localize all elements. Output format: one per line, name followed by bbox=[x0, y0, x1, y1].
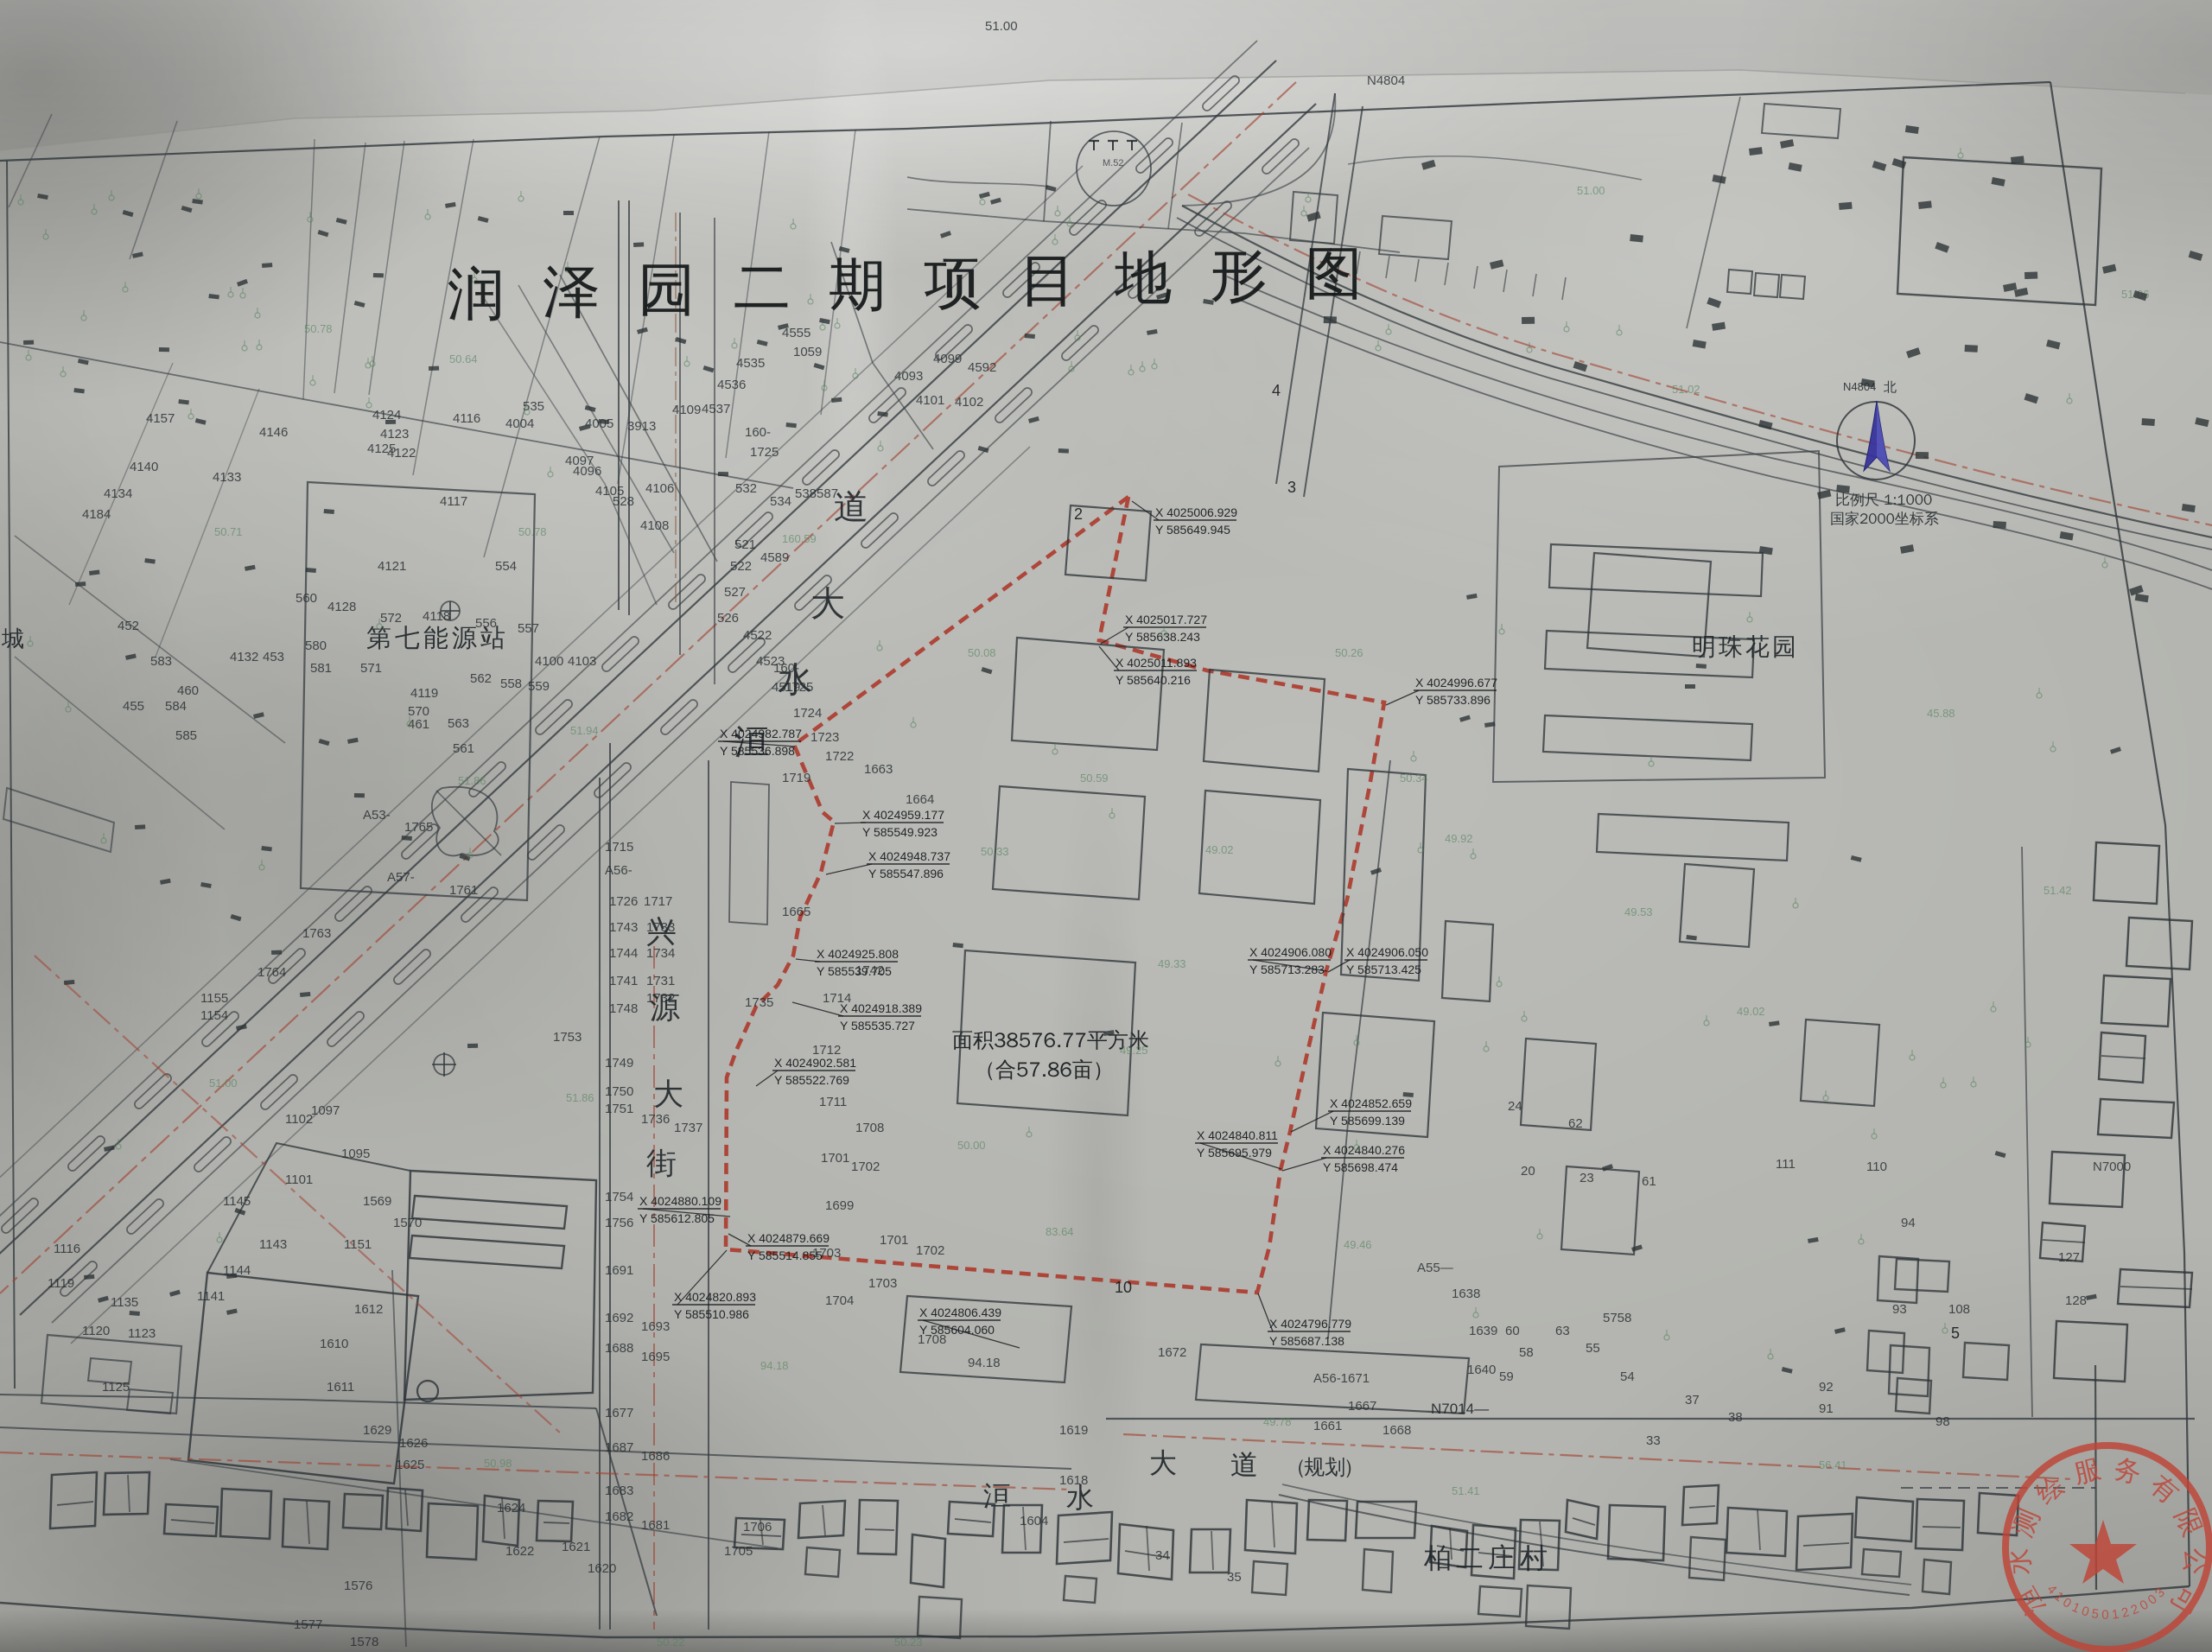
svg-text:1714: 1714 bbox=[823, 991, 851, 1006]
svg-text:4103: 4103 bbox=[568, 654, 596, 669]
svg-text:51.86: 51.86 bbox=[458, 774, 486, 787]
svg-text:N7000: N7000 bbox=[2093, 1160, 2131, 1174]
svg-text:X 4024852.659: X 4024852.659 bbox=[1330, 1096, 1412, 1110]
svg-text:4184: 4184 bbox=[82, 507, 111, 522]
svg-text:Y 585687.138: Y 585687.138 bbox=[1269, 1334, 1344, 1348]
svg-text:59: 59 bbox=[1499, 1369, 1514, 1384]
svg-text:1722: 1722 bbox=[825, 749, 854, 764]
svg-text:108: 108 bbox=[1948, 1302, 1970, 1317]
svg-text:1667: 1667 bbox=[1348, 1399, 1376, 1414]
svg-text:1737: 1737 bbox=[674, 1121, 702, 1135]
svg-text:50.59: 50.59 bbox=[1080, 772, 1109, 785]
svg-text:1619: 1619 bbox=[1059, 1423, 1088, 1438]
svg-text:X 4024840.811: X 4024840.811 bbox=[1197, 1128, 1278, 1142]
svg-text:X 4024796.779: X 4024796.779 bbox=[1269, 1317, 1351, 1331]
svg-text:1624: 1624 bbox=[497, 1501, 525, 1515]
svg-text:559: 559 bbox=[528, 679, 550, 694]
svg-text:1151: 1151 bbox=[344, 1237, 372, 1252]
svg-text:X 4024880.109: X 4024880.109 bbox=[639, 1194, 721, 1208]
svg-text:Y 585522.769: Y 585522.769 bbox=[774, 1073, 849, 1087]
svg-text:527: 527 bbox=[724, 585, 746, 600]
svg-text:50.26: 50.26 bbox=[1335, 646, 1363, 659]
svg-text:4119: 4119 bbox=[410, 686, 438, 701]
svg-text:1726: 1726 bbox=[609, 894, 638, 909]
svg-text:581: 581 bbox=[310, 661, 332, 676]
svg-text:4118: 4118 bbox=[423, 609, 450, 624]
svg-text:1683: 1683 bbox=[605, 1484, 633, 1498]
svg-text:55: 55 bbox=[1586, 1341, 1600, 1356]
svg-text:X 4024840.276: X 4024840.276 bbox=[1323, 1143, 1405, 1157]
svg-text:580: 580 bbox=[305, 639, 327, 653]
svg-text:556: 556 bbox=[475, 616, 497, 631]
svg-text:50.00: 50.00 bbox=[957, 1139, 986, 1152]
svg-text:4140: 4140 bbox=[130, 460, 158, 474]
svg-text:1578: 1578 bbox=[350, 1635, 378, 1649]
svg-text:1677: 1677 bbox=[605, 1406, 633, 1420]
svg-text:127: 127 bbox=[2058, 1250, 2080, 1265]
svg-text:1618: 1618 bbox=[1059, 1473, 1088, 1488]
svg-text:56.41: 56.41 bbox=[1819, 1458, 1847, 1471]
svg-text:4005: 4005 bbox=[585, 416, 613, 431]
svg-text:1754: 1754 bbox=[605, 1190, 633, 1204]
svg-text:3913: 3913 bbox=[627, 419, 656, 434]
svg-text:33: 33 bbox=[1646, 1433, 1661, 1448]
svg-text:1719: 1719 bbox=[782, 771, 810, 785]
svg-text:460: 460 bbox=[177, 683, 199, 698]
svg-text:4121: 4121 bbox=[378, 559, 406, 574]
svg-text:34: 34 bbox=[1155, 1548, 1170, 1563]
svg-text:1663: 1663 bbox=[864, 762, 893, 777]
svg-text:A55—: A55— bbox=[1417, 1261, 1453, 1275]
svg-text:1610: 1610 bbox=[320, 1337, 348, 1351]
svg-text:24: 24 bbox=[1508, 1099, 1522, 1114]
svg-text:49.46: 49.46 bbox=[1344, 1238, 1372, 1251]
svg-text:1725: 1725 bbox=[750, 445, 779, 460]
svg-text:X 4024948.737: X 4024948.737 bbox=[868, 849, 950, 863]
svg-text:49.78: 49.78 bbox=[1263, 1415, 1292, 1428]
svg-text:571: 571 bbox=[360, 661, 382, 676]
svg-text:Y 585547.896: Y 585547.896 bbox=[868, 867, 944, 880]
svg-text:1612: 1612 bbox=[354, 1302, 383, 1317]
svg-text:N4804: N4804 bbox=[1843, 380, 1876, 393]
svg-text:160-: 160- bbox=[745, 425, 771, 440]
svg-text:1621: 1621 bbox=[562, 1540, 590, 1554]
svg-text:4106: 4106 bbox=[645, 481, 674, 496]
svg-text:1708: 1708 bbox=[918, 1332, 946, 1347]
svg-text:1693: 1693 bbox=[641, 1319, 670, 1334]
svg-text:1687: 1687 bbox=[605, 1440, 633, 1455]
svg-text:554: 554 bbox=[495, 559, 517, 574]
svg-text:585: 585 bbox=[175, 728, 197, 743]
svg-text:50.71: 50.71 bbox=[214, 525, 243, 538]
svg-text:4537: 4537 bbox=[702, 402, 730, 416]
svg-text:4004: 4004 bbox=[505, 416, 534, 431]
svg-text:X 4024906.080: X 4024906.080 bbox=[1249, 945, 1332, 959]
svg-text:1699: 1699 bbox=[825, 1198, 854, 1213]
svg-text:1704: 1704 bbox=[825, 1293, 854, 1308]
svg-text:1639: 1639 bbox=[1469, 1324, 1497, 1338]
svg-text:562: 562 bbox=[470, 671, 492, 686]
svg-text:3: 3 bbox=[1287, 479, 1296, 496]
svg-text:1155: 1155 bbox=[200, 991, 228, 1006]
svg-text:1742: 1742 bbox=[855, 963, 884, 978]
svg-text:51.00: 51.00 bbox=[209, 1077, 238, 1090]
svg-text:50.23: 50.23 bbox=[894, 1636, 923, 1649]
svg-text:1569: 1569 bbox=[363, 1194, 391, 1209]
svg-text:23: 23 bbox=[1580, 1171, 1594, 1185]
svg-text:X 4024996.677: X 4024996.677 bbox=[1415, 676, 1497, 689]
svg-text:1604: 1604 bbox=[1020, 1514, 1048, 1528]
svg-text:1611: 1611 bbox=[327, 1380, 354, 1395]
svg-text:1101: 1101 bbox=[285, 1172, 313, 1187]
svg-text:1638: 1638 bbox=[1452, 1287, 1480, 1301]
svg-text:X 4024959.177: X 4024959.177 bbox=[862, 808, 944, 822]
svg-text:N4804: N4804 bbox=[1367, 73, 1405, 88]
svg-text:1711: 1711 bbox=[819, 1095, 847, 1109]
svg-text:1640: 1640 bbox=[1467, 1363, 1496, 1377]
svg-text:557: 557 bbox=[518, 621, 539, 636]
svg-text:4522: 4522 bbox=[743, 628, 772, 643]
svg-text:20: 20 bbox=[1521, 1164, 1535, 1179]
svg-text:535: 535 bbox=[523, 399, 544, 414]
svg-text:1102: 1102 bbox=[285, 1112, 313, 1127]
svg-text:Y 585695.979: Y 585695.979 bbox=[1197, 1146, 1272, 1160]
svg-text:1703: 1703 bbox=[868, 1276, 897, 1291]
svg-text:50.98: 50.98 bbox=[484, 1457, 512, 1470]
svg-text:49.02: 49.02 bbox=[1737, 1005, 1765, 1018]
svg-text:1702: 1702 bbox=[851, 1160, 880, 1174]
svg-text:521: 521 bbox=[734, 537, 756, 552]
svg-text:54: 54 bbox=[1620, 1369, 1635, 1384]
svg-text:1125: 1125 bbox=[102, 1380, 130, 1395]
svg-text:X 4024918.389: X 4024918.389 bbox=[840, 1001, 922, 1015]
svg-text:50.22: 50.22 bbox=[657, 1636, 685, 1649]
svg-text:4100: 4100 bbox=[535, 654, 563, 669]
svg-text:1119: 1119 bbox=[48, 1276, 74, 1291]
svg-text:X 4025017.727: X 4025017.727 bbox=[1125, 613, 1207, 626]
svg-text:1570: 1570 bbox=[393, 1216, 422, 1230]
svg-text:1701: 1701 bbox=[821, 1151, 849, 1166]
svg-text:49.25: 49.25 bbox=[1120, 1044, 1148, 1057]
svg-text:Y 585638.243: Y 585638.243 bbox=[1125, 630, 1200, 644]
svg-text:128: 128 bbox=[2065, 1293, 2087, 1308]
svg-text:35: 35 bbox=[1227, 1570, 1242, 1585]
svg-text:561: 561 bbox=[453, 741, 474, 756]
svg-text:1626: 1626 bbox=[399, 1436, 428, 1451]
svg-text:1691: 1691 bbox=[605, 1263, 633, 1278]
svg-text:Y 585535.727: Y 585535.727 bbox=[840, 1019, 915, 1032]
svg-text:1688: 1688 bbox=[605, 1341, 633, 1356]
svg-text:1733: 1733 bbox=[646, 920, 675, 935]
svg-text:1622: 1622 bbox=[505, 1544, 534, 1559]
svg-text:1756: 1756 bbox=[605, 1216, 633, 1230]
svg-text:50.08: 50.08 bbox=[968, 646, 996, 659]
svg-text:1681: 1681 bbox=[641, 1518, 670, 1533]
svg-text:1732: 1732 bbox=[646, 991, 675, 1006]
svg-text:A56-1671: A56-1671 bbox=[1313, 1371, 1370, 1386]
svg-text:1095: 1095 bbox=[341, 1147, 370, 1161]
svg-text:111: 111 bbox=[1776, 1157, 1796, 1172]
svg-text:4122: 4122 bbox=[387, 446, 416, 461]
svg-text:10: 10 bbox=[1115, 1279, 1132, 1296]
svg-text:4535: 4535 bbox=[736, 356, 765, 371]
svg-text:584: 584 bbox=[165, 699, 187, 714]
svg-text:4108: 4108 bbox=[640, 518, 669, 533]
svg-text:1097: 1097 bbox=[311, 1103, 340, 1118]
svg-text:583: 583 bbox=[150, 654, 172, 669]
svg-text:1665: 1665 bbox=[782, 905, 810, 919]
svg-text:572: 572 bbox=[380, 611, 402, 626]
svg-text:1703: 1703 bbox=[812, 1246, 841, 1261]
svg-text:4102: 4102 bbox=[955, 395, 983, 410]
svg-text:50.78: 50.78 bbox=[304, 322, 333, 335]
svg-text:461: 461 bbox=[408, 717, 429, 732]
svg-text:5758: 5758 bbox=[1603, 1311, 1631, 1325]
svg-text:1708: 1708 bbox=[855, 1121, 884, 1135]
svg-text:1761: 1761 bbox=[449, 883, 478, 898]
svg-text:5: 5 bbox=[1951, 1325, 1960, 1342]
svg-text:4592: 4592 bbox=[968, 360, 996, 375]
svg-text:1145: 1145 bbox=[223, 1194, 251, 1209]
svg-text:1749: 1749 bbox=[605, 1056, 633, 1071]
svg-text:49.53: 49.53 bbox=[1624, 905, 1653, 918]
svg-text:Y 585713.425: Y 585713.425 bbox=[1346, 963, 1421, 976]
svg-text:Y 585536.898: Y 585536.898 bbox=[720, 744, 795, 758]
svg-text:4109: 4109 bbox=[672, 403, 701, 417]
svg-text:1629: 1629 bbox=[363, 1423, 391, 1438]
svg-text:1620: 1620 bbox=[588, 1561, 616, 1576]
svg-text:X 4024925.808: X 4024925.808 bbox=[817, 947, 899, 961]
svg-text:N7014—: N7014— bbox=[1431, 1401, 1489, 1417]
svg-text:50.64: 50.64 bbox=[449, 353, 478, 365]
svg-text:Y 585612.805: Y 585612.805 bbox=[639, 1211, 715, 1225]
svg-text:1577: 1577 bbox=[294, 1617, 322, 1632]
svg-text:61: 61 bbox=[1642, 1174, 1656, 1189]
svg-text:51.86: 51.86 bbox=[566, 1091, 594, 1104]
svg-text:98: 98 bbox=[1935, 1414, 1950, 1429]
svg-text:4132: 4132 bbox=[230, 650, 258, 664]
svg-text:1135: 1135 bbox=[111, 1295, 138, 1310]
svg-text:1123: 1123 bbox=[128, 1326, 156, 1341]
svg-text:A56-: A56- bbox=[605, 863, 632, 878]
svg-text:94.18: 94.18 bbox=[760, 1359, 789, 1372]
svg-text:51.02: 51.02 bbox=[1672, 383, 1700, 396]
svg-text:4093: 4093 bbox=[894, 369, 923, 384]
svg-text:1695: 1695 bbox=[641, 1350, 670, 1364]
svg-text:1705: 1705 bbox=[724, 1544, 753, 1559]
svg-text:62: 62 bbox=[1568, 1116, 1583, 1131]
svg-text:532: 532 bbox=[735, 481, 757, 496]
svg-text:4101: 4101 bbox=[916, 393, 944, 408]
svg-text:X 4024982.787: X 4024982.787 bbox=[720, 727, 802, 740]
svg-text:Y 585640.216: Y 585640.216 bbox=[1116, 673, 1191, 687]
svg-text:4536: 4536 bbox=[717, 378, 746, 392]
svg-text:51.00: 51.00 bbox=[985, 19, 1018, 34]
svg-text:X 4024906.050: X 4024906.050 bbox=[1346, 945, 1428, 959]
svg-text:Y 585699.139: Y 585699.139 bbox=[1330, 1114, 1405, 1128]
svg-text:1120: 1120 bbox=[82, 1324, 110, 1338]
svg-text:4134: 4134 bbox=[104, 486, 132, 501]
svg-text:4146: 4146 bbox=[259, 425, 288, 440]
svg-text:1059: 1059 bbox=[793, 345, 822, 359]
svg-text:1750: 1750 bbox=[605, 1084, 633, 1099]
svg-text:1672: 1672 bbox=[1158, 1345, 1186, 1360]
svg-text:93: 93 bbox=[1892, 1302, 1907, 1317]
svg-text:A57-: A57- bbox=[387, 870, 415, 885]
svg-text:534: 534 bbox=[770, 494, 791, 509]
svg-text:528: 528 bbox=[613, 494, 634, 509]
svg-text:1712: 1712 bbox=[812, 1043, 841, 1058]
svg-text:1724: 1724 bbox=[793, 706, 822, 721]
svg-text:94: 94 bbox=[1901, 1216, 1916, 1230]
svg-text:1734: 1734 bbox=[646, 946, 675, 961]
svg-text:4157: 4157 bbox=[146, 411, 175, 426]
svg-text:4133: 4133 bbox=[213, 470, 241, 485]
svg-text:1741: 1741 bbox=[609, 974, 638, 988]
svg-text:1763: 1763 bbox=[302, 926, 331, 941]
svg-text:1723: 1723 bbox=[810, 730, 839, 745]
svg-text:453: 453 bbox=[263, 650, 284, 664]
svg-text:4123: 4123 bbox=[380, 427, 409, 442]
svg-text:160-: 160- bbox=[773, 661, 799, 676]
svg-text:560: 560 bbox=[296, 591, 317, 606]
svg-text:1717: 1717 bbox=[644, 894, 672, 909]
svg-text:1744: 1744 bbox=[609, 946, 638, 961]
svg-text:1725: 1725 bbox=[785, 680, 813, 695]
svg-text:1141: 1141 bbox=[197, 1289, 225, 1304]
svg-text:522: 522 bbox=[730, 559, 752, 574]
svg-text:Y 585549.923: Y 585549.923 bbox=[862, 825, 938, 839]
svg-text:4: 4 bbox=[1272, 382, 1281, 399]
svg-text:1715: 1715 bbox=[605, 840, 633, 855]
svg-text:51.42: 51.42 bbox=[2044, 884, 2072, 897]
svg-text:4116: 4116 bbox=[453, 411, 480, 426]
svg-text:Y 585733.896: Y 585733.896 bbox=[1415, 693, 1491, 707]
svg-text:1743: 1743 bbox=[609, 920, 638, 935]
svg-text:Y 585649.945: Y 585649.945 bbox=[1155, 523, 1230, 537]
svg-text:M.52: M.52 bbox=[1103, 158, 1123, 168]
svg-text:X 4024879.669: X 4024879.669 bbox=[747, 1231, 829, 1245]
svg-text:1143: 1143 bbox=[259, 1237, 287, 1252]
svg-text:50.33: 50.33 bbox=[981, 845, 1009, 858]
svg-text:1661: 1661 bbox=[1313, 1419, 1342, 1433]
svg-text:1116: 1116 bbox=[54, 1242, 80, 1256]
svg-text:83.64: 83.64 bbox=[1046, 1225, 1074, 1238]
svg-text:49.02: 49.02 bbox=[1205, 843, 1234, 856]
svg-text:1706: 1706 bbox=[743, 1520, 772, 1534]
svg-text:1753: 1753 bbox=[553, 1030, 582, 1045]
svg-text:110: 110 bbox=[1866, 1160, 1887, 1174]
svg-text:1692: 1692 bbox=[605, 1311, 633, 1325]
svg-text:Y 585713.283: Y 585713.283 bbox=[1249, 963, 1325, 976]
svg-text:A53-: A53- bbox=[363, 808, 391, 823]
svg-text:1731: 1731 bbox=[646, 974, 675, 988]
svg-text:50.34: 50.34 bbox=[1400, 772, 1428, 785]
svg-text:91: 91 bbox=[1819, 1401, 1834, 1416]
svg-text:63: 63 bbox=[1555, 1324, 1570, 1338]
svg-text:452: 452 bbox=[118, 619, 139, 633]
svg-text:1664: 1664 bbox=[906, 792, 934, 807]
svg-text:X 4024820.893: X 4024820.893 bbox=[674, 1290, 756, 1304]
svg-text:1751: 1751 bbox=[605, 1102, 633, 1116]
svg-text:4096: 4096 bbox=[573, 464, 601, 479]
svg-text:X 4024806.439: X 4024806.439 bbox=[919, 1306, 1001, 1319]
svg-text:1736: 1736 bbox=[641, 1112, 670, 1127]
svg-text:1668: 1668 bbox=[1382, 1423, 1411, 1438]
svg-text:45.88: 45.88 bbox=[1927, 707, 1955, 720]
svg-text:X 4025011.893: X 4025011.893 bbox=[1116, 656, 1197, 670]
svg-text:558: 558 bbox=[500, 677, 522, 691]
svg-text:38: 38 bbox=[1728, 1410, 1743, 1425]
svg-text:1682: 1682 bbox=[605, 1509, 633, 1524]
svg-text:1625: 1625 bbox=[396, 1458, 424, 1472]
svg-text:563: 563 bbox=[448, 716, 469, 731]
svg-text:X 4025006.929: X 4025006.929 bbox=[1155, 505, 1237, 519]
svg-text:2: 2 bbox=[1074, 505, 1083, 523]
svg-text:1576: 1576 bbox=[344, 1579, 372, 1593]
svg-text:4099: 4099 bbox=[933, 352, 962, 366]
svg-text:94.18: 94.18 bbox=[968, 1356, 1001, 1370]
svg-text:49.92: 49.92 bbox=[1445, 832, 1473, 845]
svg-text:4117: 4117 bbox=[440, 494, 467, 509]
svg-text:50.78: 50.78 bbox=[518, 525, 547, 538]
svg-text:4589: 4589 bbox=[760, 550, 789, 565]
svg-text:1764: 1764 bbox=[257, 965, 286, 980]
svg-text:1748: 1748 bbox=[609, 1001, 638, 1016]
svg-text:92: 92 bbox=[1819, 1380, 1834, 1395]
svg-text:538587: 538587 bbox=[795, 486, 838, 501]
svg-text:455: 455 bbox=[123, 699, 144, 714]
svg-text:60: 60 bbox=[1505, 1324, 1520, 1338]
svg-text:58: 58 bbox=[1519, 1345, 1534, 1360]
svg-text:51.00: 51.00 bbox=[1577, 184, 1605, 197]
svg-text:X 4024902.581: X 4024902.581 bbox=[774, 1056, 856, 1070]
svg-text:1702: 1702 bbox=[916, 1243, 944, 1258]
svg-text:1765: 1765 bbox=[404, 820, 433, 835]
svg-text:1686: 1686 bbox=[641, 1449, 670, 1464]
svg-text:37: 37 bbox=[1685, 1393, 1700, 1407]
svg-text:1701: 1701 bbox=[880, 1233, 908, 1248]
svg-text:1154: 1154 bbox=[200, 1008, 228, 1023]
svg-text:51.94: 51.94 bbox=[570, 724, 599, 737]
svg-text:Y 585698.474: Y 585698.474 bbox=[1323, 1160, 1398, 1174]
svg-text:49.33: 49.33 bbox=[1158, 957, 1186, 970]
svg-text:160.59: 160.59 bbox=[782, 532, 817, 545]
svg-text:51.41: 51.41 bbox=[1452, 1484, 1480, 1497]
svg-text:Y 585510.986: Y 585510.986 bbox=[674, 1307, 749, 1321]
svg-text:1735: 1735 bbox=[745, 995, 773, 1010]
svg-text:526: 526 bbox=[717, 611, 739, 626]
svg-text:4128: 4128 bbox=[327, 600, 356, 614]
